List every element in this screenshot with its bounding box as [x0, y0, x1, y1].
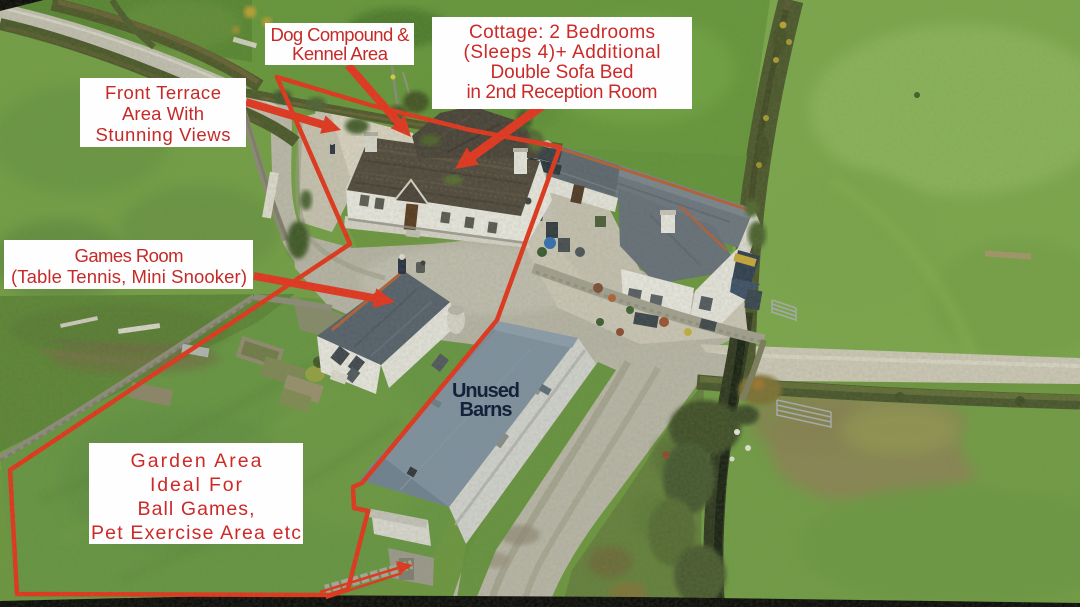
svg-text:Pet Exercise Area etc: Pet Exercise Area etc [91, 522, 301, 544]
svg-text:Front Terrace: Front Terrace [105, 82, 221, 103]
svg-text:Ideal For: Ideal For [150, 474, 243, 496]
svg-text:in 2nd Reception Room: in 2nd Reception Room [467, 82, 658, 103]
svg-text:Garden Area: Garden Area [131, 450, 262, 472]
svg-text:Area With: Area With [122, 103, 204, 124]
svg-text:Games Room: Games Room [75, 245, 184, 266]
svg-text:Barns: Barns [460, 399, 513, 421]
svg-text:Cottage: 2 Bedrooms: Cottage: 2 Bedrooms [469, 22, 655, 43]
svg-text:Stunning Views: Stunning Views [96, 124, 231, 145]
svg-text:Double Sofa Bed: Double Sofa Bed [491, 62, 634, 83]
svg-text:Kennel Area: Kennel Area [292, 43, 389, 64]
svg-text:Dog Compound &: Dog Compound & [271, 24, 411, 45]
svg-text:Ball Games,: Ball Games, [138, 498, 255, 520]
svg-text:(Table Tennis, Mini Snooker): (Table Tennis, Mini Snooker) [11, 266, 247, 287]
svg-text:(Sleeps 4)+ Additional: (Sleeps 4)+ Additional [464, 42, 661, 63]
